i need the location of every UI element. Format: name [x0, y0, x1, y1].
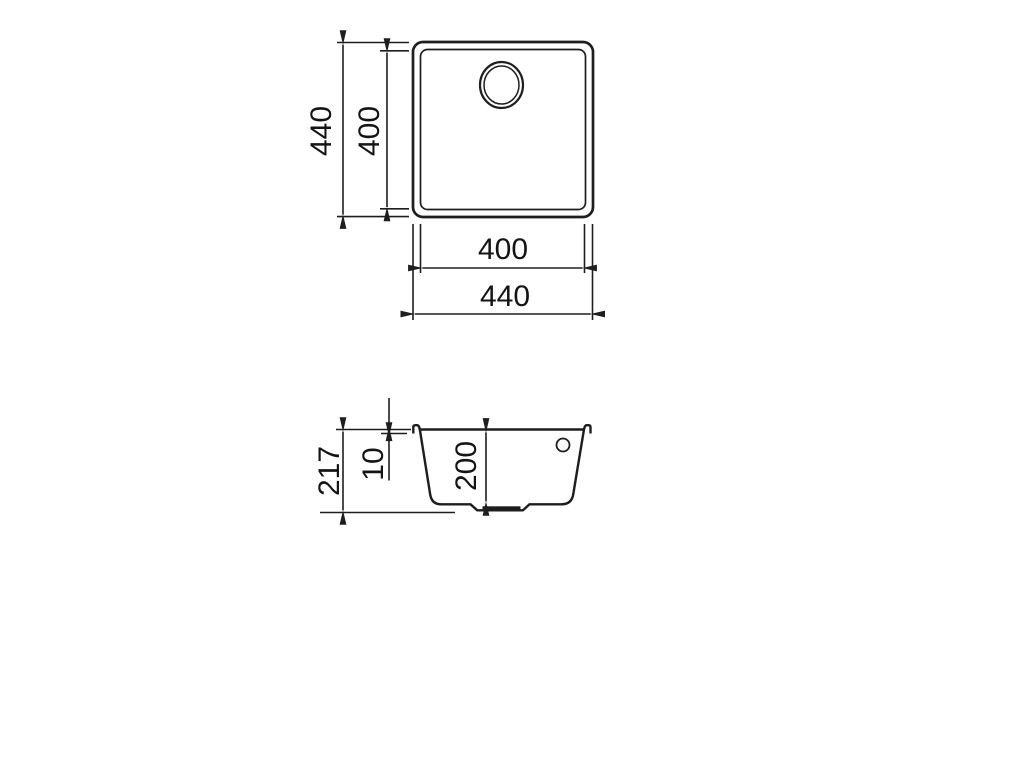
- drain-hole-inner-circle: [484, 66, 519, 104]
- plan-view: [413, 42, 593, 217]
- plan-outer-outline: [413, 42, 593, 217]
- section-view: [413, 425, 590, 510]
- dim-label-plan-inner-width: 400: [478, 235, 528, 265]
- overflow-hole-circle: [557, 439, 570, 452]
- dim-label-section-rim-thickness: 10: [359, 447, 389, 480]
- dim-label-plan-inner-height: 400: [355, 106, 385, 156]
- dim-label-section-bowl-depth: 200: [452, 441, 482, 491]
- section-drain-bar: [483, 506, 521, 510]
- sink-dimension-drawing: 440 400 400 440 217 10 200: [0, 0, 1024, 768]
- plan-bowl-outline: [421, 50, 586, 210]
- dim-label-plan-outer-width: 440: [480, 282, 530, 312]
- technical-drawing-linework: [0, 0, 1024, 768]
- dim-label-plan-outer-height: 440: [307, 106, 337, 156]
- dim-label-section-total-height: 217: [315, 446, 345, 496]
- drain-hole-outer-circle: [480, 62, 523, 108]
